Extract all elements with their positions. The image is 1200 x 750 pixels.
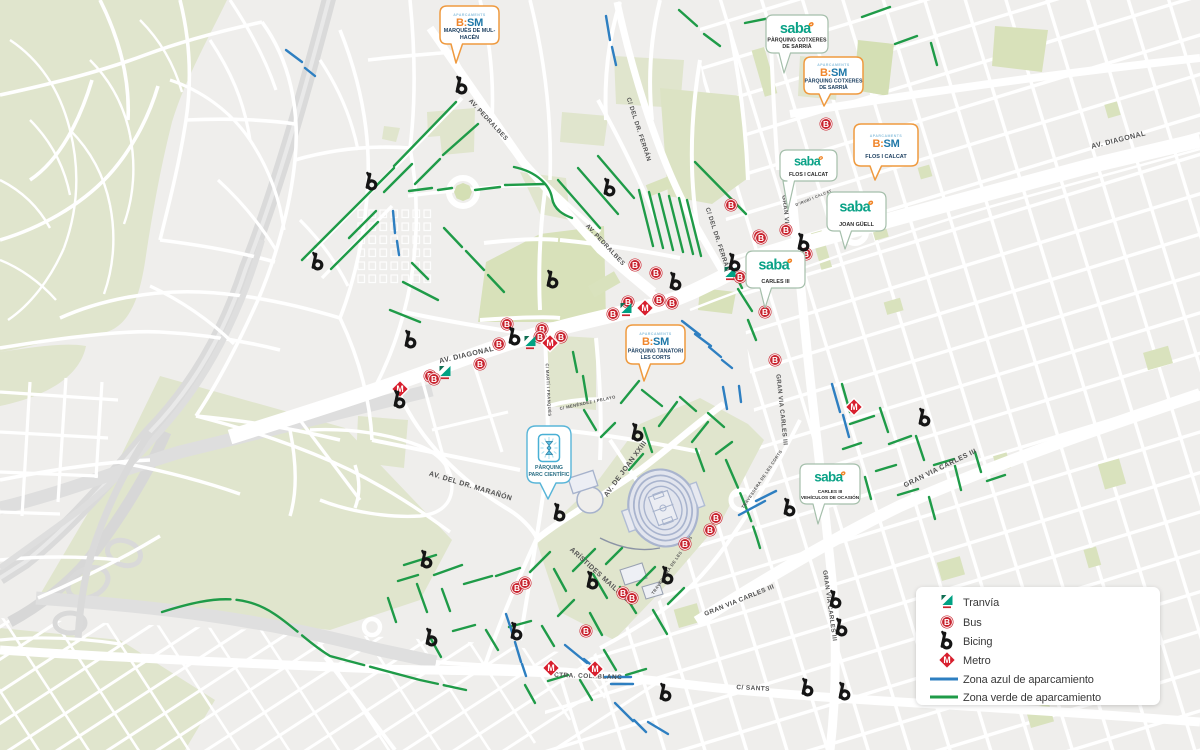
svg-text:FLOS I CALCAT: FLOS I CALCAT (789, 172, 829, 178)
svg-text:HACÉN: HACÉN (460, 33, 479, 41)
svg-text:JOAN GÜELL: JOAN GÜELL (839, 221, 874, 228)
svg-text:PÀRQUING TANATORI: PÀRQUING TANATORI (628, 347, 684, 354)
svg-text:Zona verde de aparcamiento: Zona verde de aparcamiento (963, 692, 1101, 704)
svg-text:Tranvía: Tranvía (963, 597, 1000, 609)
svg-text:Zona azul de aparcamiento: Zona azul de aparcamiento (963, 674, 1094, 686)
svg-text:CARLES III: CARLES III (818, 489, 842, 494)
svg-text:saba: saba (839, 200, 871, 216)
svg-text:VEHÍCULOS DE OCASIÓN: VEHÍCULOS DE OCASIÓN (801, 493, 860, 500)
svg-text:B:SM: B:SM (456, 17, 483, 29)
svg-text:PÀRQUING: PÀRQUING (535, 464, 563, 471)
svg-text:CARLES III: CARLES III (761, 279, 790, 285)
svg-text:Metro: Metro (963, 655, 991, 667)
svg-text:saba: saba (814, 470, 843, 485)
svg-text:MARQUÈS DE MUL-: MARQUÈS DE MUL- (444, 26, 496, 34)
svg-text:B:SM: B:SM (873, 138, 900, 150)
svg-text:saba: saba (780, 21, 812, 37)
svg-text:PARC CIENTÍFIC: PARC CIENTÍFIC (528, 470, 569, 478)
svg-text:saba: saba (758, 258, 790, 274)
svg-text:FLOS I CALCAT: FLOS I CALCAT (865, 154, 907, 160)
svg-text:LES CORTS: LES CORTS (641, 355, 671, 361)
svg-text:DE SARRIÀ: DE SARRIÀ (782, 43, 811, 50)
svg-text:PÀRQUING COTXERES: PÀRQUING COTXERES (767, 36, 827, 43)
svg-text:saba: saba (794, 155, 822, 169)
svg-text:Bicing: Bicing (963, 636, 992, 648)
svg-text:Bus: Bus (963, 617, 982, 629)
svg-text:B:SM: B:SM (820, 67, 847, 79)
svg-text:B:SM: B:SM (642, 336, 669, 348)
svg-text:PÀRQUING COTXERES: PÀRQUING COTXERES (805, 78, 863, 85)
svg-text:DE SARRIÀ: DE SARRIÀ (819, 84, 848, 91)
